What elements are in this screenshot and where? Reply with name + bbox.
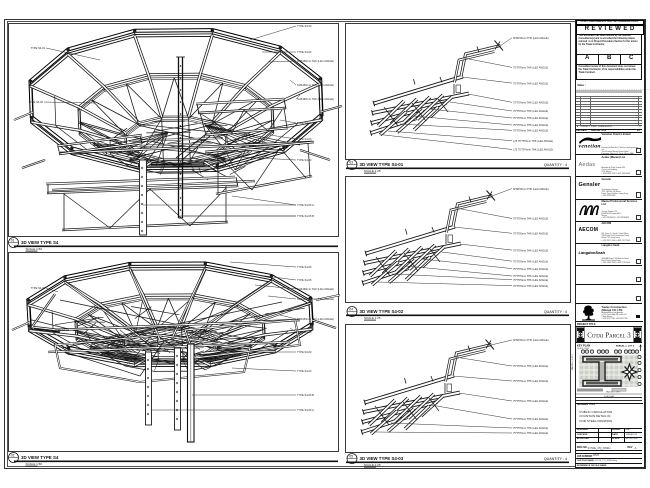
- svg-text:SHS150mm THK (L&G ANGLE): SHS150mm THK (L&G ANGLE): [513, 37, 549, 40]
- svg-text:venetian: venetian: [578, 144, 600, 150]
- svg-text:SCALE 1:50: SCALE 1:50: [26, 247, 43, 251]
- svg-text:SHS150mm THK (L&G ANGLE): SHS150mm THK (L&G ANGLE): [297, 287, 334, 291]
- svg-text:03: 03: [349, 161, 353, 165]
- svg-text:TYPE S4-05 B: TYPE S4-05 B: [297, 393, 314, 397]
- svg-text:3D VIEW TYPE S4: 3D VIEW TYPE S4: [21, 240, 59, 245]
- svg-text:SCALE 1:50: SCALE 1:50: [26, 462, 43, 466]
- svg-text:COTAI PARCEL 3: COTAI PARCEL 3: [587, 332, 631, 340]
- svg-text:3D VIEW TYPE S4: 3D VIEW TYPE S4: [21, 455, 59, 460]
- svg-text:TYPE S4-02: TYPE S4-02: [29, 100, 44, 104]
- svg-text:QUANTITY : 4: QUANTITY : 4: [544, 310, 567, 314]
- svg-text:75*75*6mm THK (L&G ANGLE): 75*75*6mm THK (L&G ANGLE): [513, 380, 548, 383]
- svg-text:SCALE 1:25: SCALE 1:25: [364, 316, 381, 320]
- svg-text:75*75*6mm THK (L&G ANGLE): 75*75*6mm THK (L&G ANGLE): [513, 110, 548, 113]
- svg-text:SHS150mm THK (L&G ANGLE): SHS150mm THK (L&G ANGLE): [297, 317, 334, 321]
- svg-text:SHS150mm THK (L&G ANGLE): SHS150mm THK (L&G ANGLE): [297, 297, 334, 301]
- svg-text:PARCEL 1 OF 1: PARCEL 1 OF 1: [606, 391, 621, 394]
- svg-text:QUANTITY : 4: QUANTITY : 4: [544, 163, 567, 167]
- svg-text:75*75*6mm THK (L&G ANGLE): 75*75*6mm THK (L&G ANGLE): [513, 233, 548, 236]
- svg-text:75*75*6mm THK (L&G ANGLE): 75*75*6mm THK (L&G ANGLE): [513, 82, 548, 85]
- svg-text:75*75*6mm THK (L&G ANGLE): 75*75*6mm THK (L&G ANGLE): [513, 268, 548, 271]
- svg-text:TYPE S4-04: TYPE S4-04: [297, 369, 312, 373]
- svg-text:75*75*6mm THK (L&G ANGLE): 75*75*6mm THK (L&G ANGLE): [513, 218, 548, 221]
- svg-text:TYPE S4-03: TYPE S4-03: [297, 24, 312, 28]
- svg-text:TYPE S4-03: TYPE S4-03: [297, 158, 312, 162]
- svg-text:L75 75*75*6mm THK (L&G ANGLE): L75 75*75*6mm THK (L&G ANGLE): [513, 149, 553, 152]
- svg-text:TYPE S4-05: TYPE S4-05: [297, 265, 312, 269]
- svg-text:SCALE 1:25: SCALE 1:25: [364, 463, 381, 467]
- svg-text:TYPE S4-05 B: TYPE S4-05 B: [297, 214, 314, 218]
- svg-text:KEY PLAN: KEY PLAN: [577, 343, 590, 347]
- svg-text:TYPE S4-03: TYPE S4-03: [297, 330, 312, 334]
- svg-text:3D VIEW TYPE S4-03: 3D VIEW TYPE S4-03: [360, 456, 404, 461]
- svg-text:PARCEL 1, LOT 2: PARCEL 1, LOT 2: [616, 344, 635, 347]
- svg-text:SCALE 1:25: SCALE 1:25: [364, 169, 381, 173]
- svg-text:02: 02: [11, 454, 15, 458]
- svg-text:75*75*6mm THK (L&G ANGLE): 75*75*6mm THK (L&G ANGLE): [513, 67, 548, 70]
- svg-text:75*75*6mm THK (L&G ANGLE): 75*75*6mm THK (L&G ANGLE): [513, 279, 548, 282]
- svg-text:TYPE S4-02: TYPE S4-02: [31, 286, 46, 290]
- svg-text:TYPE S4-05 A: TYPE S4-05 A: [297, 203, 314, 207]
- svg-text:75*75*6mm THK (L&G ANGLE): 75*75*6mm THK (L&G ANGLE): [513, 275, 548, 278]
- svg-text:TYPE S4-05: TYPE S4-05: [297, 278, 312, 282]
- svg-text:75*75*6mm THK (L&G ANGLE): 75*75*6mm THK (L&G ANGLE): [513, 102, 548, 105]
- svg-text:TYPE S4-04: TYPE S4-04: [297, 137, 312, 141]
- svg-text:75*75*6mm THK (L&G ANGLE): 75*75*6mm THK (L&G ANGLE): [513, 365, 548, 368]
- svg-text:TYPE S4-03: TYPE S4-03: [297, 350, 312, 354]
- svg-text:TYPE S4-03: TYPE S4-03: [55, 328, 70, 332]
- svg-text:SHS150mm THK (L&G ANGLE): SHS150mm THK (L&G ANGLE): [513, 188, 549, 191]
- svg-text:SHS150mm THK (L&G ANGLE): SHS150mm THK (L&G ANGLE): [297, 59, 334, 63]
- svg-text:SHS150mm THK (L&G ANGLE): SHS150mm THK (L&G ANGLE): [297, 97, 334, 101]
- svg-text:TYPE S4-01: TYPE S4-01: [31, 46, 46, 50]
- svg-text:75*75*6mm THK (L&G ANGLE): 75*75*6mm THK (L&G ANGLE): [513, 260, 548, 263]
- svg-text:75*75*6mm THK (L&G ANGLE): 75*75*6mm THK (L&G ANGLE): [513, 432, 548, 435]
- svg-text:3D VIEW TYPE S4-01: 3D VIEW TYPE S4-01: [360, 162, 404, 167]
- svg-text:01: 01: [11, 239, 15, 243]
- svg-text:05: 05: [349, 455, 353, 459]
- svg-text:L75 75*75*6mm THK (L&G ANGLE): L75 75*75*6mm THK (L&G ANGLE): [513, 140, 553, 143]
- svg-text:75*75*6mm THK (L&G ANGLE): 75*75*6mm THK (L&G ANGLE): [513, 124, 548, 127]
- svg-text:75*75*6mm THK (L&G ANGLE): 75*75*6mm THK (L&G ANGLE): [513, 285, 548, 288]
- svg-text:3D VIEW TYPE S4-02: 3D VIEW TYPE S4-02: [360, 309, 404, 314]
- svg-text:QUANTITY : 4: QUANTITY : 4: [544, 457, 567, 461]
- svg-text:75*75*6mm THK (L&G ANGLE): 75*75*6mm THK (L&G ANGLE): [513, 117, 548, 120]
- svg-text:75*75*6mm THK (L&G ANGLE): 75*75*6mm THK (L&G ANGLE): [513, 249, 548, 252]
- svg-text:04: 04: [349, 308, 353, 312]
- svg-text:TYPE S4-03: TYPE S4-03: [297, 121, 312, 125]
- svg-text:TYPE S4-05 A: TYPE S4-05 A: [297, 408, 314, 412]
- svg-text:TYPE S4-02: TYPE S4-02: [297, 50, 312, 54]
- svg-text:75*75*6mm THK (L&G ANGLE): 75*75*6mm THK (L&G ANGLE): [513, 418, 548, 421]
- svg-text:SHS150mm THK (L&G ANGLE): SHS150mm THK (L&G ANGLE): [297, 83, 334, 87]
- svg-text:75*75*6mm THK (L&G ANGLE): 75*75*6mm THK (L&G ANGLE): [513, 400, 548, 403]
- svg-text:75*75*6mm THK (L&G ANGLE): 75*75*6mm THK (L&G ANGLE): [513, 427, 548, 430]
- svg-text:SHS150mm THK (L&G ANGLE): SHS150mm THK (L&G ANGLE): [513, 339, 549, 342]
- svg-text:75*75*6mm THK (L&G ANGLE): 75*75*6mm THK (L&G ANGLE): [513, 130, 548, 133]
